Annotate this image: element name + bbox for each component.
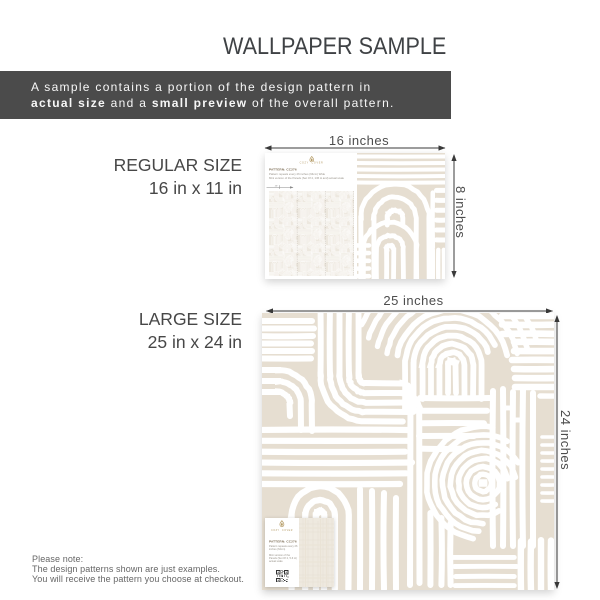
svg-text:26": 26" [275, 185, 278, 187]
